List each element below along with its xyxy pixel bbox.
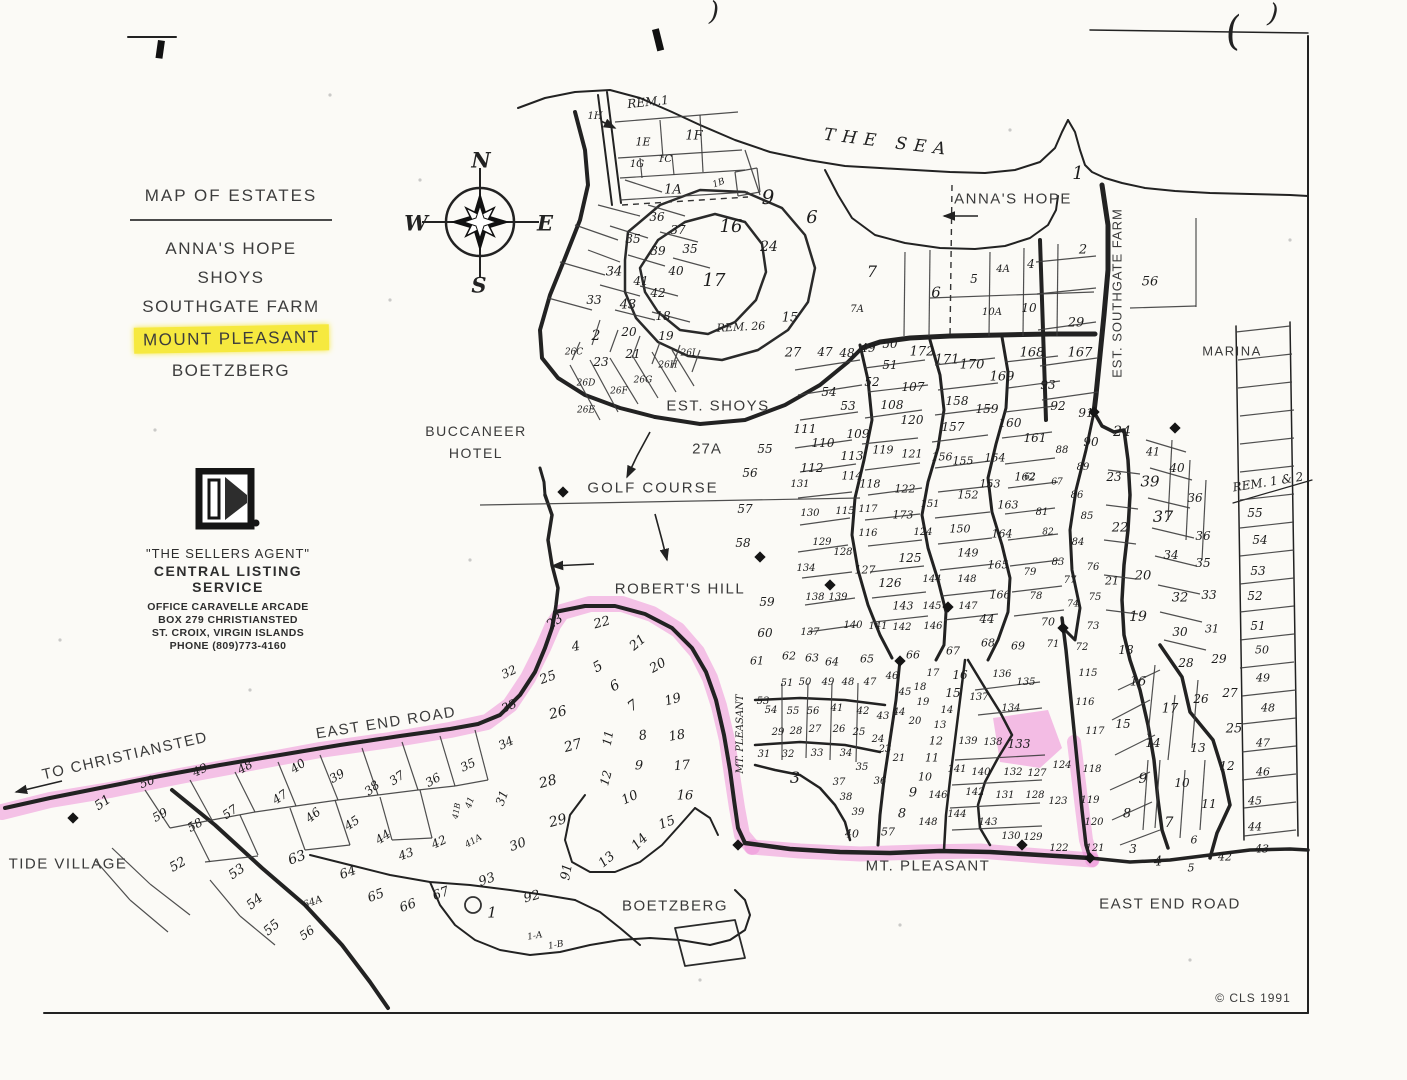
- map-label: ANNA'S HOPE: [954, 192, 1072, 207]
- lot-number: 70: [1041, 617, 1055, 628]
- lot-number: 50: [882, 338, 897, 350]
- lot-number: 139: [958, 737, 977, 747]
- lot-number: 124: [1052, 761, 1071, 771]
- lot-number: 13: [1190, 742, 1205, 754]
- lot-number: 59: [759, 596, 774, 608]
- lot-number: 33: [1201, 589, 1216, 601]
- map-label: 1H: [587, 112, 602, 122]
- lot-number: 127: [1027, 769, 1046, 779]
- lot-number: 34: [606, 266, 623, 279]
- lot-number: 129: [812, 538, 831, 548]
- lot-number: 90: [1083, 436, 1098, 448]
- agent-org-line2: SERVICE: [126, 579, 330, 595]
- lot-number: 149: [958, 548, 979, 559]
- lot-number: 92: [1050, 400, 1065, 412]
- lot-number: 53: [840, 400, 855, 412]
- lot-number: 146: [928, 791, 947, 801]
- lot-number: 14: [1145, 737, 1160, 749]
- lot-number: 51: [1250, 620, 1265, 632]
- lot-number: 40: [1169, 462, 1184, 474]
- lot-number: 172: [910, 346, 935, 359]
- agent-address-line2: BOX 279 CHRISTIANSTED: [126, 614, 330, 627]
- lot-number: 11: [1201, 798, 1216, 810]
- lot-number: 21: [893, 754, 906, 764]
- lot-number: 15: [945, 687, 960, 699]
- lot-number: 140: [971, 768, 990, 778]
- lot-number: 44: [1248, 822, 1262, 833]
- lot-number: 6: [806, 209, 817, 227]
- lot-number: 140: [843, 621, 862, 631]
- lot-number: 131: [995, 791, 1014, 801]
- lot-number: 115: [1078, 669, 1097, 679]
- lot-number: 46: [886, 672, 899, 682]
- lot-number: 45: [1248, 796, 1262, 807]
- agent-tagline: "THE SELLERS AGENT": [126, 546, 330, 561]
- lot-number: 62: [1024, 474, 1035, 483]
- lot-number: 16: [952, 669, 967, 681]
- lot-number: 26E: [577, 407, 595, 416]
- map-label: EST. SOUTHGATE FARM: [1111, 208, 1124, 378]
- lot-number: 29: [772, 728, 785, 738]
- title-underline: [130, 219, 332, 221]
- lot-number: 57: [881, 827, 895, 838]
- lot-number: 48: [842, 678, 855, 688]
- lot-number: 51: [781, 679, 794, 689]
- lot-number: 153: [980, 479, 1001, 490]
- lot-number: 39: [650, 245, 665, 257]
- lot-number: 160: [999, 417, 1022, 429]
- lot-number: 55: [757, 443, 772, 455]
- lot-number: 49: [822, 678, 835, 688]
- lot-number: 42: [650, 287, 665, 299]
- map-label: BUCCANEER: [425, 424, 526, 438]
- lot-number: 22: [592, 615, 611, 632]
- lot-number: 26C: [565, 349, 583, 358]
- sellers-agent-logo-icon: [195, 468, 261, 532]
- lot-number: 36: [1195, 530, 1210, 542]
- lot-number: 29: [1068, 317, 1085, 330]
- lot-number: 146: [923, 622, 942, 632]
- lot-number: 118: [860, 479, 881, 490]
- lot-number: 41: [831, 704, 844, 714]
- lot-number: 26I: [680, 350, 695, 359]
- lot-number: 10A: [982, 308, 1002, 318]
- compass-north-label: N: [471, 148, 490, 173]
- map-label: EAST END ROAD: [1099, 897, 1241, 912]
- lot-number: 32: [782, 750, 795, 760]
- lot-number: 34: [1163, 549, 1178, 561]
- lot-number: 3: [790, 770, 800, 786]
- lot-number: 35: [856, 763, 869, 773]
- lot-number: 76: [1087, 563, 1100, 573]
- lot-number: 137: [969, 693, 988, 703]
- lot-number: 21: [1105, 576, 1119, 587]
- lot-number: 42: [1218, 852, 1232, 863]
- agent-address-line3: ST. CROIX, VIRGIN ISLANDS: [126, 627, 330, 640]
- lot-number: 134: [1001, 704, 1020, 714]
- lot-number: 167: [1068, 347, 1093, 360]
- lot-number: 111: [794, 423, 817, 435]
- lot-number: 12: [1219, 760, 1234, 772]
- lot-number: 116: [1075, 698, 1094, 708]
- lot-number: 31: [1205, 624, 1219, 635]
- lot-number: 151: [920, 500, 939, 510]
- lot-number: 83: [1052, 558, 1065, 568]
- lot-number: 121: [1085, 844, 1104, 854]
- lot-number: 69: [1011, 641, 1025, 652]
- title-block: MAP OF ESTATES ANNA'S HOPE SHOYS SOUTHGA…: [116, 186, 346, 390]
- lot-number: 26F: [610, 388, 628, 397]
- lot-number: 66: [906, 650, 920, 661]
- lot-number: 1A: [664, 184, 682, 197]
- lot-number: 67: [946, 646, 960, 657]
- lot-number: 86: [1071, 491, 1084, 501]
- lot-number: 8: [1123, 808, 1131, 821]
- lot-number: 147: [958, 602, 977, 612]
- lot-number: 128: [833, 548, 852, 558]
- lot-number: 118: [1082, 765, 1101, 775]
- lot-number: 131: [790, 480, 809, 490]
- lot-number: 1G: [630, 160, 644, 170]
- lot-number: 50: [1255, 645, 1269, 656]
- lot-number: 24: [760, 240, 778, 254]
- lot-number: 14: [941, 706, 954, 716]
- lot-number: 84: [1072, 538, 1085, 548]
- page-title: MAP OF ESTATES: [116, 186, 346, 206]
- lot-number: 117: [858, 505, 877, 515]
- lot-number: 173: [893, 510, 914, 521]
- lot-number: 54: [821, 386, 836, 398]
- lot-number: 17: [673, 759, 691, 773]
- map-label: BOETZBERG: [622, 899, 728, 914]
- lot-number: 107: [902, 381, 925, 393]
- map-label: GOLF COURSE: [587, 481, 718, 496]
- lot-number: 4: [1027, 258, 1035, 270]
- lot-number: 56: [807, 707, 820, 717]
- lot-number: 93: [1040, 379, 1055, 391]
- lot-number: 170: [960, 359, 985, 372]
- lot-number: 128: [1025, 791, 1044, 801]
- lot-number: 7: [1165, 816, 1174, 830]
- lot-number: 44: [893, 708, 906, 718]
- lot-number: 134: [796, 564, 815, 574]
- lot-number: 7A: [850, 305, 864, 315]
- lot-number: 64: [825, 657, 839, 668]
- lot-number: 51: [882, 359, 897, 371]
- lot-number: 18: [914, 683, 927, 693]
- lot-number: 163: [998, 500, 1019, 511]
- lot-number: 75: [1089, 593, 1102, 603]
- lot-number: 89: [1077, 463, 1090, 473]
- map-label: 27A: [692, 442, 722, 457]
- lot-number: 48: [1261, 703, 1275, 714]
- lot-number: 28: [790, 727, 803, 737]
- lot-number: 43: [877, 712, 890, 722]
- map-label: ): [709, 0, 719, 25]
- lot-number: 77: [1064, 576, 1077, 586]
- lot-number: 16: [720, 218, 743, 236]
- lot-number: 4: [1154, 856, 1162, 869]
- map-label: ROBERT'S HILL: [615, 582, 745, 597]
- map-label: MT. PLEASANT: [736, 694, 746, 773]
- lot-number: 12: [929, 736, 943, 747]
- lot-number: 17: [703, 272, 726, 290]
- lot-number: 26: [833, 725, 846, 735]
- compass-rose: N W E S: [408, 150, 553, 295]
- lot-number: 57: [737, 503, 752, 515]
- estate-name-boetzberg: BOETZBERG: [116, 361, 346, 381]
- lot-number: 19: [917, 698, 930, 708]
- lot-number: 15: [1115, 718, 1130, 730]
- lot-number: 43: [1255, 844, 1269, 855]
- lot-number: 2: [592, 329, 601, 343]
- lot-number: 18: [668, 728, 687, 744]
- lot-number: 122: [1049, 844, 1068, 854]
- lot-number: 48: [839, 347, 854, 359]
- lot-number: 55: [1247, 507, 1262, 519]
- lot-number: 136: [992, 670, 1011, 680]
- lot-number: 171: [935, 354, 960, 367]
- lot-number: 165: [988, 560, 1009, 571]
- lot-number: 28: [1178, 657, 1193, 669]
- lot-number: 37: [833, 778, 846, 788]
- lot-number: 109: [847, 428, 870, 440]
- lot-number: 36: [649, 211, 664, 223]
- listing-agent-block: "THE SELLERS AGENT" CENTRAL LISTING SERV…: [126, 468, 330, 653]
- lot-number: 13: [934, 721, 947, 731]
- lot-number: 42: [857, 707, 870, 717]
- lot-number: 82: [1042, 529, 1053, 538]
- lot-number: 123: [1048, 797, 1067, 807]
- lot-number: 39: [852, 808, 865, 818]
- lot-number: 122: [895, 484, 916, 495]
- agent-address-line1: OFFICE CARAVELLE ARCADE: [126, 601, 330, 614]
- lot-number: 3: [1129, 843, 1137, 855]
- lot-number: 26G: [634, 377, 653, 386]
- lot-number: 108: [881, 399, 904, 411]
- lot-number: 33: [586, 294, 601, 306]
- lot-number: 124: [913, 528, 932, 538]
- lot-number: 79: [1024, 568, 1037, 578]
- lot-number: 120: [1084, 818, 1103, 828]
- lot-number: 9: [762, 187, 775, 207]
- lot-number: 33: [811, 749, 824, 759]
- lot-number: 72: [1076, 643, 1089, 653]
- lot-number: 4A: [996, 265, 1010, 275]
- lot-number: 26D: [577, 380, 596, 389]
- lot-number: 34: [840, 749, 853, 759]
- lot-number: 10: [1021, 302, 1036, 314]
- lot-number: 38: [840, 793, 853, 803]
- lot-number: 88: [1056, 446, 1069, 456]
- lot-number: 11: [925, 753, 939, 764]
- lot-number: 56: [1142, 276, 1159, 289]
- lot-number: 148: [918, 818, 937, 828]
- map-label: EST. SHOYS: [666, 399, 769, 414]
- lot-number: 7: [867, 264, 877, 280]
- estate-name-annas-hope: ANNA'S HOPE: [116, 239, 346, 259]
- lot-number: 40: [845, 829, 859, 840]
- lot-number: 1C: [658, 155, 672, 165]
- lot-number: 23: [593, 356, 608, 368]
- lot-number: 58: [735, 537, 750, 549]
- lot-number: 56: [742, 467, 757, 479]
- lot-number: 17: [927, 669, 940, 679]
- lot-number: 5: [1188, 863, 1195, 874]
- lot-number: 116: [858, 529, 877, 539]
- lot-number: 9: [909, 787, 917, 800]
- lot-number: 35: [1195, 557, 1210, 569]
- lot-number: 138: [983, 738, 1002, 748]
- lot-number: 141: [947, 765, 966, 775]
- lot-number: 29: [1211, 653, 1226, 665]
- agent-org-line1: CENTRAL LISTING: [126, 563, 330, 579]
- lot-number: 10: [1174, 777, 1189, 789]
- lot-number: 137: [800, 628, 819, 638]
- lot-number: 1E: [635, 137, 650, 148]
- lot-number: 152: [958, 490, 979, 501]
- lot-number: 155: [953, 456, 974, 467]
- lot-number: 164: [992, 529, 1013, 540]
- lot-number: 150: [950, 524, 971, 535]
- estate-name-mount-pleasant: MOUNT PLEASANT: [116, 326, 346, 352]
- lot-number: 21: [625, 348, 640, 360]
- lot-number: 92: [522, 889, 541, 906]
- lot-number: 37: [670, 224, 685, 236]
- lot-number: 46: [1256, 767, 1270, 778]
- lot-number: 85: [1081, 512, 1094, 522]
- lot-number: 16: [1130, 676, 1147, 689]
- lot-number: 6: [1191, 835, 1198, 846]
- lot-number: 169: [990, 371, 1015, 384]
- lot-number: 145: [922, 602, 941, 612]
- map-label: TIDE VILLAGE: [9, 857, 128, 872]
- lot-number: 9: [1139, 772, 1148, 786]
- lot-number: 158: [946, 395, 969, 407]
- lot-number: 44: [979, 613, 994, 625]
- lot-number: 23: [1106, 471, 1121, 483]
- lot-number: 26: [1193, 693, 1208, 705]
- lot-number: 73: [1087, 622, 1100, 632]
- lot-number: 49: [1256, 673, 1270, 684]
- lot-number: 50: [799, 678, 812, 688]
- lot-number: 22: [1112, 522, 1129, 535]
- lot-number: 129: [1023, 833, 1042, 843]
- map-label: MT. PLEASANT: [866, 859, 991, 874]
- lot-number: 130: [800, 509, 819, 519]
- lot-number: 135: [1016, 678, 1035, 688]
- lot-number: 35: [625, 233, 640, 245]
- lot-number: 1: [1072, 165, 1083, 183]
- map-label: MARINA: [1202, 345, 1262, 358]
- lot-number: 144: [947, 810, 966, 820]
- lot-number: 81: [1036, 508, 1049, 518]
- map-label: HOTEL: [449, 446, 503, 460]
- lot-number: 20: [909, 717, 922, 727]
- lot-number: 68: [981, 638, 995, 649]
- lot-number: 161: [1024, 432, 1047, 444]
- lot-number: 27: [785, 347, 802, 360]
- lot-number: 25: [1226, 723, 1243, 736]
- lot-number: 126: [879, 577, 902, 589]
- lot-number: 125: [899, 552, 922, 564]
- lot-number: 120: [901, 414, 924, 426]
- lot-number: 119: [873, 445, 894, 456]
- lot-number: 159: [976, 403, 999, 415]
- lot-number: 49: [860, 342, 875, 354]
- lot-number: 54: [1252, 534, 1267, 546]
- lot-number: 1: [487, 906, 497, 921]
- lot-number: 20: [1135, 570, 1152, 583]
- lot-number: 8: [898, 808, 906, 821]
- lot-number: 142: [965, 788, 984, 798]
- lot-number: 12: [598, 769, 614, 787]
- lot-number: 39: [1140, 475, 1159, 490]
- lot-number: 143: [893, 601, 914, 612]
- lot-number: 156: [932, 452, 953, 463]
- lot-number: 138: [805, 593, 824, 603]
- lot-number: 19: [658, 330, 673, 342]
- lot-number: 52: [1247, 590, 1262, 602]
- lot-number: 127: [855, 565, 876, 576]
- lot-number: 157: [942, 421, 965, 433]
- lot-number: 15: [782, 312, 799, 325]
- compass-south-label: S: [471, 273, 486, 298]
- lot-number: 65: [860, 654, 874, 665]
- lot-number: 41: [1146, 447, 1160, 458]
- lot-number: 26H: [658, 362, 677, 371]
- lot-number: 132: [1003, 768, 1022, 778]
- agent-address-line4: PHONE (809)773-4160: [126, 640, 330, 653]
- lot-number: 27: [1222, 687, 1237, 699]
- lot-number: 1F: [685, 130, 702, 143]
- lot-number: 62: [782, 651, 796, 662]
- lot-number: 78: [1030, 592, 1043, 602]
- lot-number: 74: [1067, 601, 1078, 610]
- estate-name-southgate-farm: SOUTHGATE FARM: [116, 297, 346, 317]
- lot-number: 5: [970, 273, 978, 285]
- lot-number: 18: [655, 310, 670, 322]
- lot-number: 53: [1250, 565, 1265, 577]
- estate-name-shoys: SHOYS: [116, 268, 346, 288]
- lot-number: 32: [1172, 592, 1189, 605]
- lot-number: 27: [809, 725, 822, 735]
- lot-number: 130: [1001, 832, 1020, 842]
- lot-number: 25: [853, 728, 866, 738]
- lot-number: 71: [1047, 640, 1060, 650]
- lot-number: 6: [931, 286, 941, 301]
- lot-number: 54: [765, 706, 778, 716]
- yellow-highlight: MOUNT PLEASANT: [134, 324, 329, 353]
- lot-number: 9: [635, 760, 643, 773]
- lot-number: 47: [1256, 738, 1270, 749]
- lot-number: 55: [787, 707, 800, 717]
- map-label: REM. 26: [716, 320, 765, 334]
- lot-number: 91: [559, 863, 575, 882]
- lot-number: 37: [1153, 509, 1173, 525]
- lot-number: 133: [1008, 738, 1031, 750]
- lot-number: 113: [841, 450, 864, 462]
- lot-number: 154: [985, 453, 1006, 464]
- lot-number: 36: [1187, 492, 1202, 504]
- lot-number: 10: [918, 772, 932, 783]
- lot-number: 16: [677, 790, 694, 803]
- lot-number: 2: [1079, 244, 1087, 257]
- compass-east-label: E: [537, 211, 553, 236]
- lot-number: 45: [899, 688, 912, 698]
- lot-number: 110: [812, 437, 835, 449]
- lot-number: 36: [874, 777, 887, 787]
